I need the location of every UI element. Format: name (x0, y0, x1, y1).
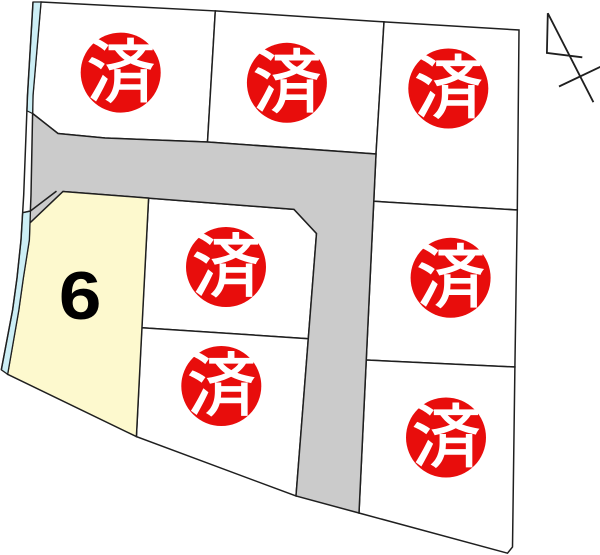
svg-text:6: 6 (59, 258, 102, 334)
